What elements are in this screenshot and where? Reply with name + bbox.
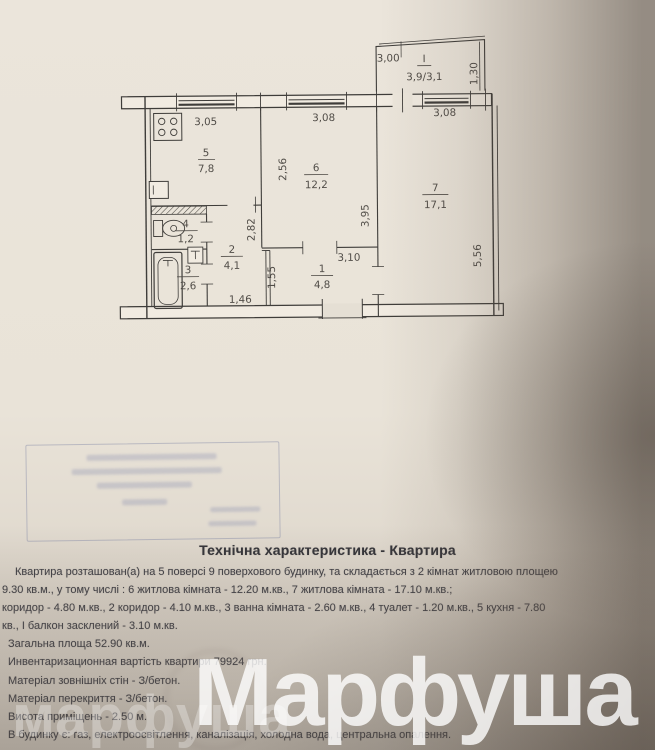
balcony-numeral: I [423,53,426,65]
room-3-number: 3 [185,264,192,276]
doc-line-4: кв., І балкон засклений - 3.10 м.кв. [0,617,655,635]
stamp-smudge [208,521,256,527]
doc-line-2: 9.30 кв.м., у тому числі : 6 житлова кім… [0,581,655,599]
dim-top-kitchen: 3,05 [194,116,217,128]
dim-room7-depth: 5,56 [472,244,484,267]
room-1-number: 1 [319,263,326,275]
dim-top-room6: 3,08 [312,112,335,124]
room-4-area: 1,2 [177,233,193,245]
doc-line-1: Квартира розташован(а) на 5 поверсі 9 по… [0,563,655,581]
room-3-area: 2,6 [180,280,196,292]
dim-top-room7: 3,08 [433,107,456,119]
room-1-area: 4,8 [314,279,330,291]
room-2-area: 4,1 [224,260,240,272]
dim-corr1-depth: 1,55 [266,266,278,289]
doc-line-10: В будинку є: газ, електроосвітлення, кан… [0,726,655,744]
balcony-height-label: 1,30 [468,62,480,85]
bathtub-icon [154,252,182,308]
dim-corr2-width: 1,46 [229,294,252,306]
room-4-number: 4 [182,218,189,230]
document-photo: 5 7,8 6 12,2 7 17,1 4 1,2 2 4,1 3 2,6 1 … [0,0,655,750]
balcony-width-label: 3,00 [377,52,400,64]
stove-icon [154,113,182,140]
dim-corr1-width: 3,10 [337,252,360,264]
stamp-smudge [122,499,167,506]
faint-round-stamp-ghost [163,648,267,750]
room-7-area: 17,1 [424,199,447,211]
room-2-number: 2 [228,244,235,256]
room-5-area: 7,8 [198,163,214,175]
document-title: Технічна характеристика - Квартира [0,542,655,558]
basin-icon [188,247,203,263]
vent-shaft-hatch [151,206,206,214]
entrance-door [318,299,366,319]
doc-line-7: Матеріал зовнішніх стін - З/бетон. [0,672,655,690]
room-6-number: 6 [313,162,320,174]
room-7-number: 7 [432,182,439,194]
room-6-area: 12,2 [305,179,328,191]
technical-characteristics-section: Технічна характеристика - Квартира Кварт… [0,542,655,744]
doc-line-9: Висота приміщень - 2.50 м. [0,708,655,726]
stamp-smudge [86,453,216,461]
kitchen-sink-icon [149,181,168,198]
doc-line-6: Инвентаризационная вартість квартири 799… [0,653,655,671]
doc-line-5: Загальна площа 52.90 кв.м. [0,635,655,653]
stamp-smudge [97,481,192,488]
doc-line-8: Матеріал перекриття - З/бетон. [0,690,655,708]
dim-room6-depth: 3,95 [359,204,371,227]
official-stamp [25,441,280,542]
room-labels: 5 7,8 6 12,2 7 17,1 4 1,2 2 4,1 3 2,6 1 … [175,145,449,292]
balcony-labels: 3,00 I 3,9/3,1 1,30 [377,52,481,86]
balcony-area-label: 3,9/3,1 [406,71,442,83]
room-5-number: 5 [203,147,210,159]
doc-line-3: коридор - 4.80 м.кв., 2 коридор - 4.10 м… [0,599,655,617]
dim-kitchen-depth: 2,56 [277,158,289,181]
stamp-smudge [72,467,222,475]
dim-corr2-depth: 2,82 [246,218,258,241]
stamp-smudge [210,507,260,513]
